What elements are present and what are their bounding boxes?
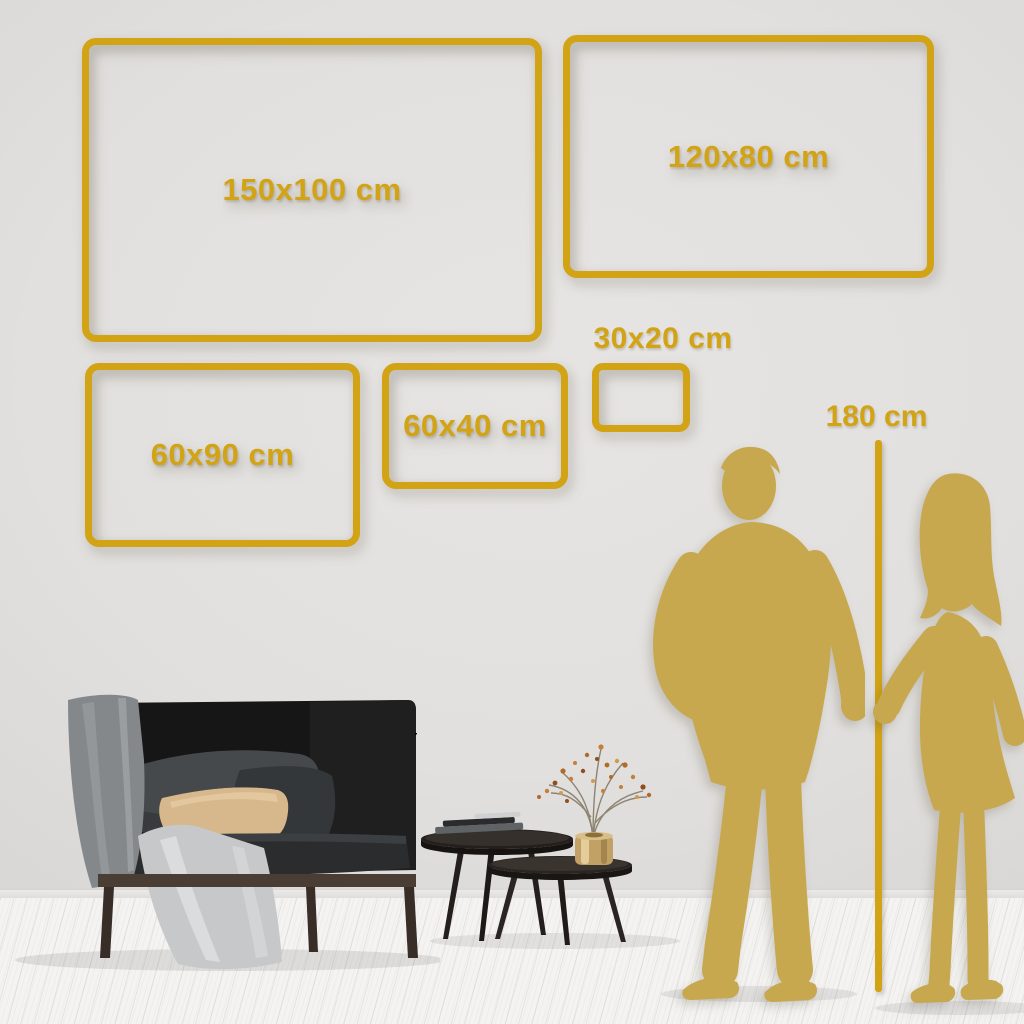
sofa-illustration xyxy=(10,690,440,975)
man-body xyxy=(667,447,865,1002)
brass-vase xyxy=(575,832,613,865)
branch-berries xyxy=(415,733,651,803)
tables-floor-shadow xyxy=(430,933,680,949)
size-label-30x20: 30x20 cm xyxy=(575,322,751,356)
sofa-wood-rail xyxy=(98,874,416,887)
coffee-tables-illustration xyxy=(415,733,690,951)
size-label-150x100: 150x100 cm xyxy=(222,172,401,208)
sofa-leg-middle xyxy=(306,887,318,952)
woman-silhouette xyxy=(850,466,1024,1018)
woman-body xyxy=(873,473,1015,1003)
size-label-120x80: 120x80 cm xyxy=(668,139,829,175)
big-coffee-table xyxy=(421,829,573,941)
sofa-leg-left xyxy=(100,887,114,958)
size-frame-30x20 xyxy=(592,363,690,432)
small-coffee-table xyxy=(488,856,632,945)
height-marker-label: 180 cm xyxy=(794,400,959,434)
size-frame-120x80: 120x80 cm xyxy=(563,35,934,278)
size-frame-150x100: 150x100 cm xyxy=(82,38,542,342)
size-label-60x90: 60x90 cm xyxy=(151,437,295,473)
size-frame-60x40: 60x40 cm xyxy=(382,363,568,489)
wall-art-size-guide: 150x100 cm 120x80 cm 60x90 cm 60x40 cm 3… xyxy=(0,0,1024,1024)
woman-floor-shadow xyxy=(875,1001,1024,1015)
dried-branch xyxy=(549,749,647,839)
man-silhouette xyxy=(653,444,865,1004)
size-label-60x40: 60x40 cm xyxy=(403,408,547,444)
size-frame-60x90: 60x90 cm xyxy=(85,363,360,547)
